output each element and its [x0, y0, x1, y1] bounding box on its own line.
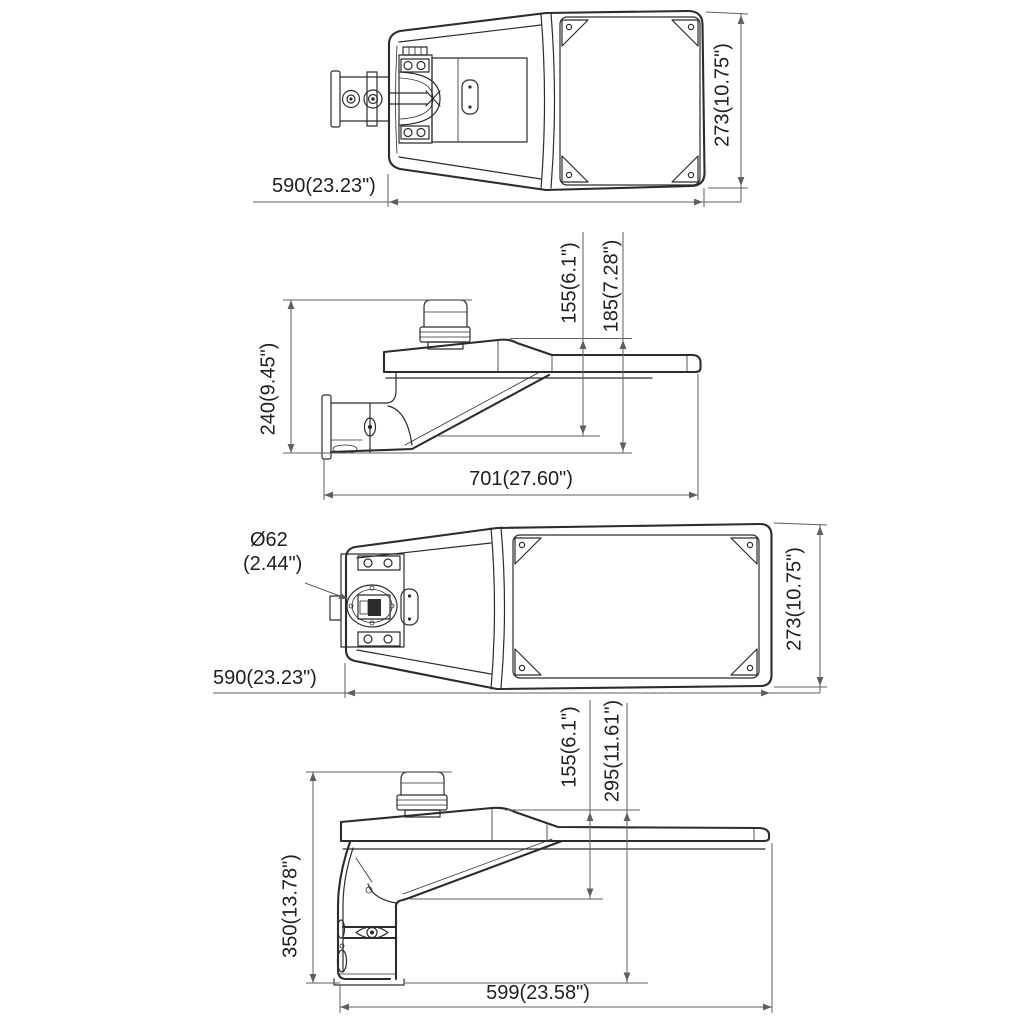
dim-label-bottom-pole-diameter: Ø62	[250, 530, 288, 551]
side-view-vertical-mount-drawing	[306, 700, 772, 1013]
dim-label-bottom-width: 590(23.23")	[213, 668, 317, 689]
dim-label-side1-length: 701(27.60")	[469, 469, 573, 490]
dim-label-side2-depth-body: 155(6.1")	[559, 706, 582, 788]
dim-label-side2-overall-height: 350(13.78")	[280, 854, 303, 958]
technical-drawing	[0, 0, 1024, 1024]
dim-label-side1-depth-arm: 185(7.28")	[601, 240, 624, 333]
dim-label-bottom-height: 273(10.75")	[784, 547, 807, 651]
dim-label-side1-depth-body: 155(6.1")	[559, 242, 582, 324]
dim-label-side2-depth-bracket: 295(11.61")	[602, 700, 625, 802]
side-view-horizontal-mount-drawing	[283, 232, 701, 500]
dim-label-top-height: 273(10.75")	[712, 43, 735, 147]
dim-label-bottom-pole-diameter-inches: (2.44")	[243, 554, 302, 575]
dim-label-top-width: 590(23.23")	[272, 176, 376, 197]
technical-drawing-page: 590(23.23") 273(10.75") 240(9.45") 155(6…	[0, 0, 1024, 1024]
dim-label-side2-length: 599(23.58")	[486, 983, 590, 1004]
dim-label-side1-overall-height: 240(9.45")	[258, 343, 281, 436]
